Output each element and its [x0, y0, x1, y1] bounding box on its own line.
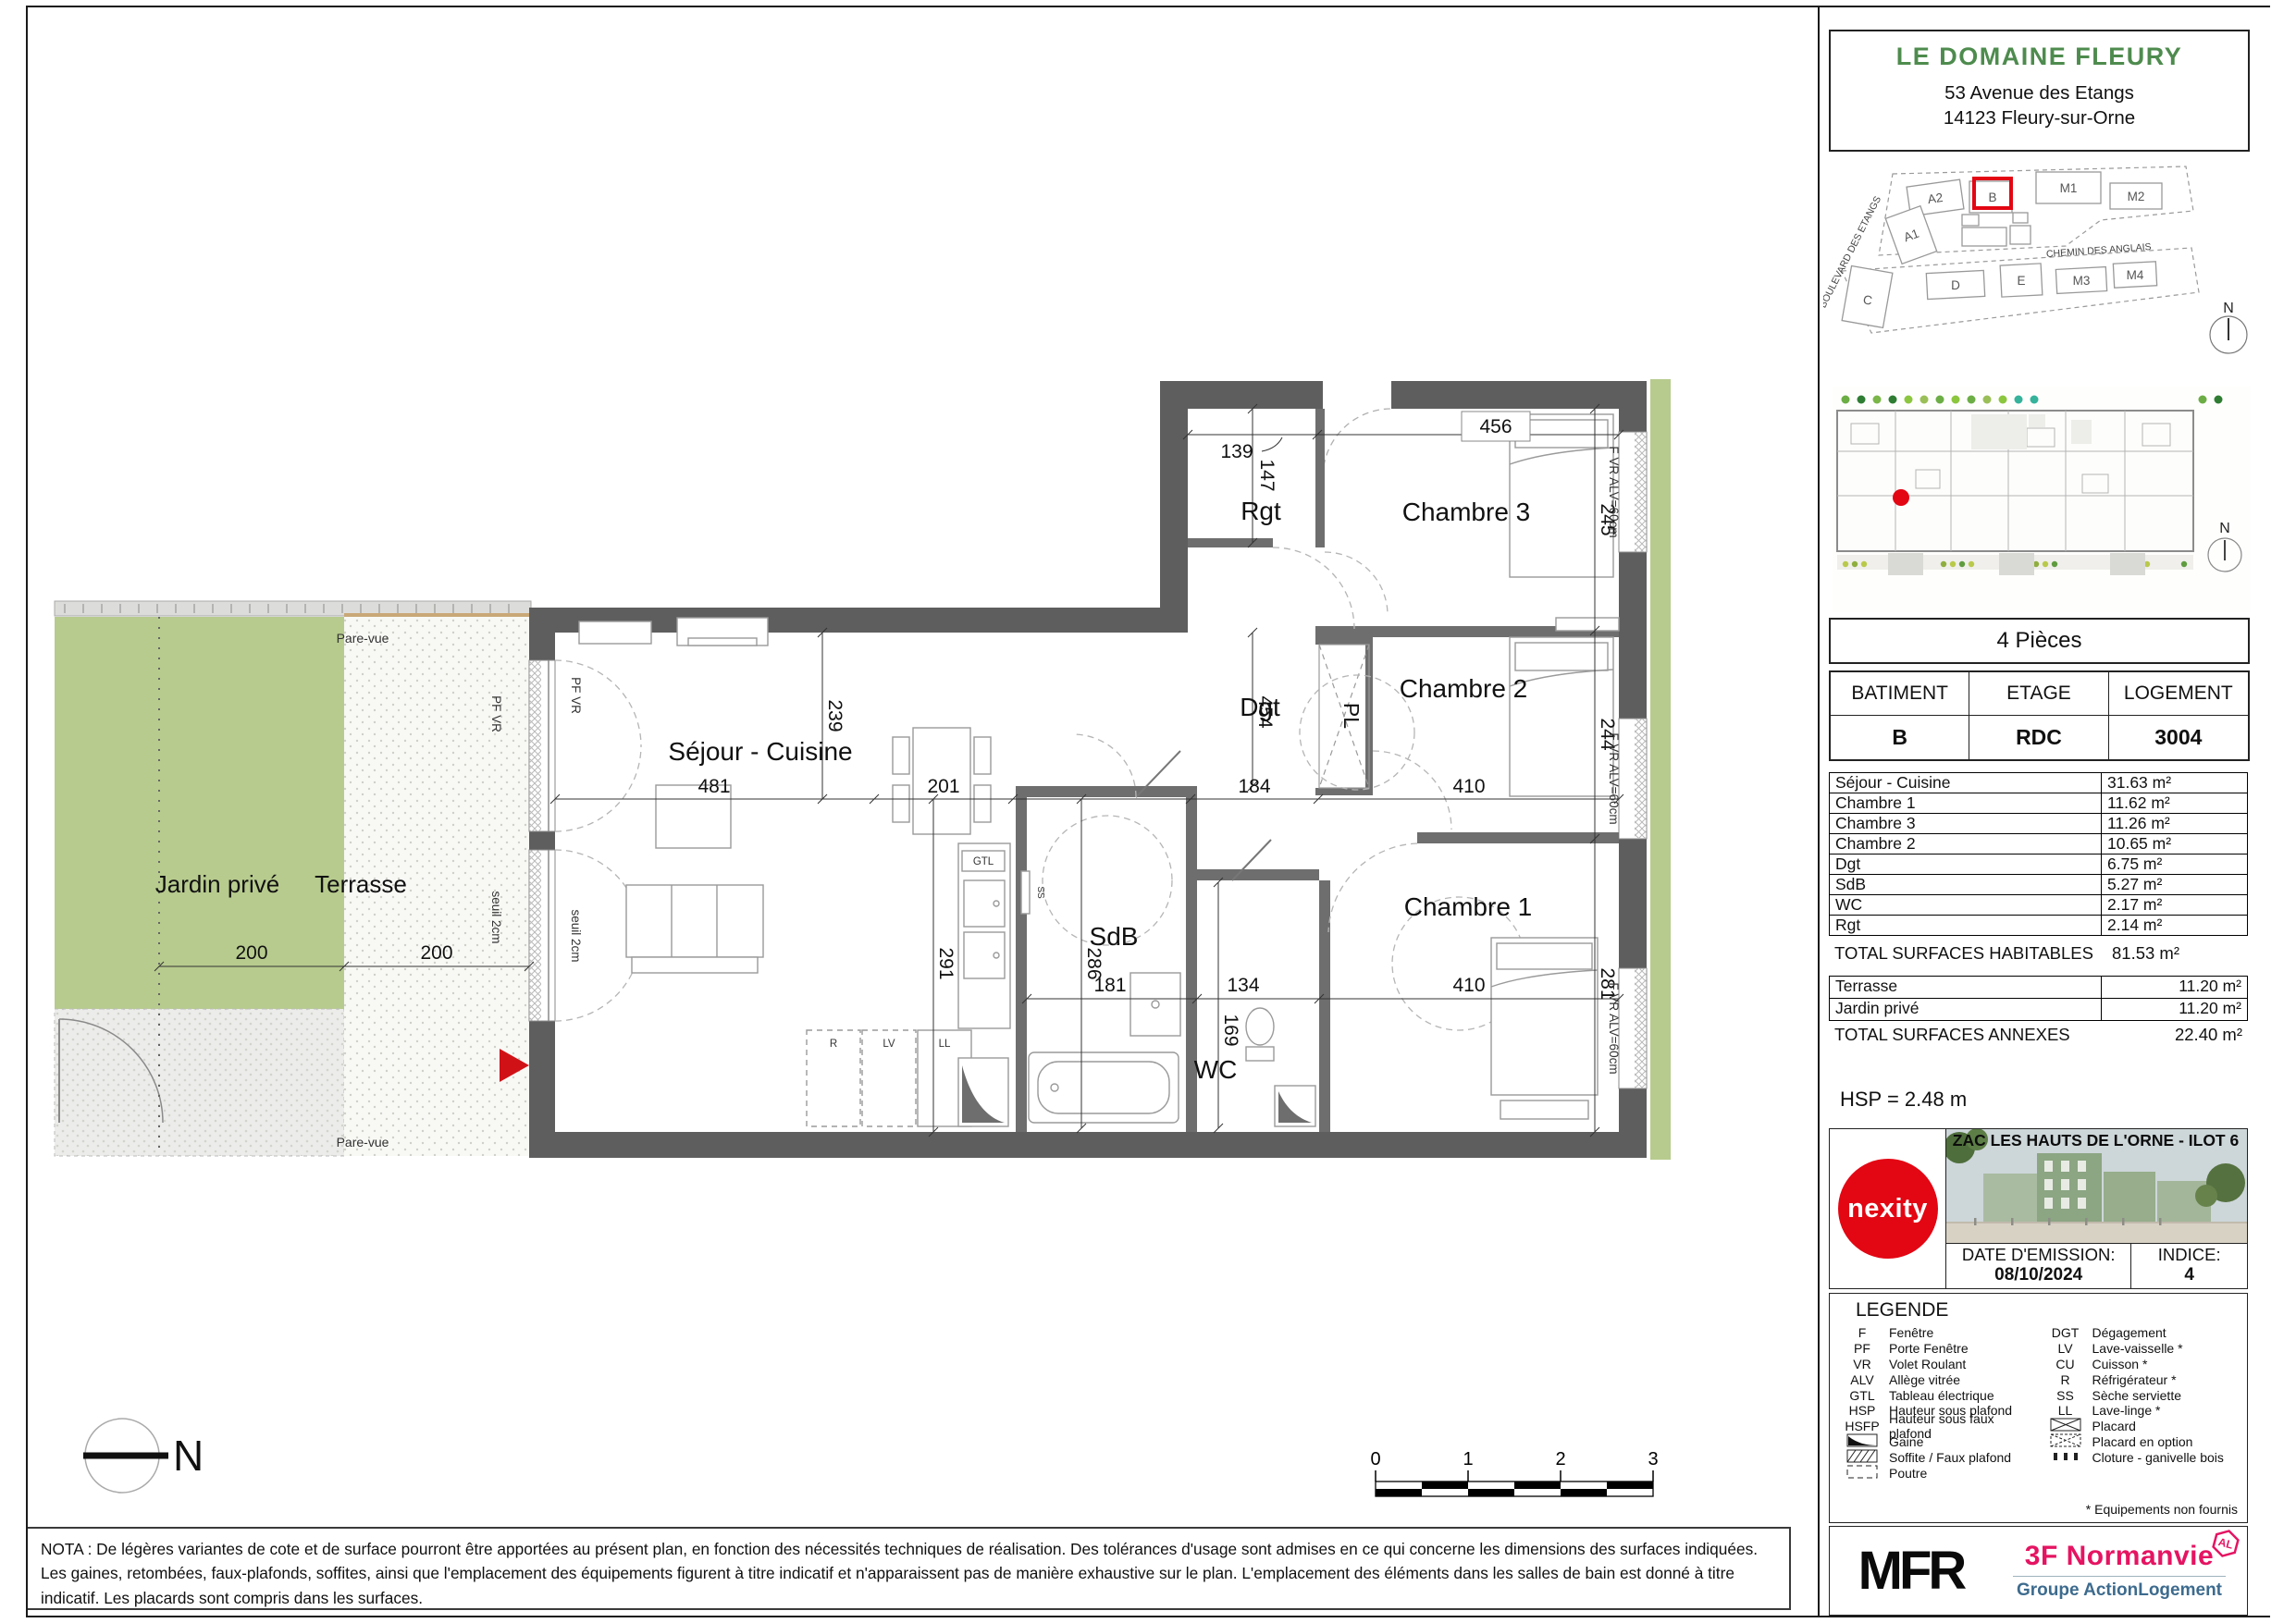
- annex-label: Jardin privé: [1830, 999, 2101, 1020]
- unit-type: 4 Pièces: [1829, 618, 2250, 664]
- legend: LEGENDE FFenêtre PFPorte Fenêtre VRVolet…: [1829, 1293, 2248, 1523]
- legend-abbr: HSFP: [1835, 1419, 1889, 1433]
- north-arrow: N: [83, 1419, 204, 1493]
- table-row: Séjour - Cuisine31.63 m²: [1830, 773, 2247, 793]
- room-ch2: Chambre 2: [1400, 674, 1528, 703]
- legend-abbr: PF: [1835, 1341, 1889, 1356]
- surface-label: SdB: [1830, 875, 2101, 894]
- building-m2: M2: [2128, 190, 2145, 203]
- table-row: Chambre 210.65 m²: [1830, 834, 2247, 855]
- 3f-normanvie-logo: 3F Normanvie AL Groupe ActionLogement: [1992, 1541, 2247, 1601]
- indice-value: 4: [2131, 1265, 2247, 1285]
- cloture-icon: [2039, 1449, 2092, 1466]
- room-terrasse: Terrasse: [315, 870, 407, 898]
- legend-label: Soffite / Faux plafond: [1889, 1450, 2039, 1465]
- poutre-icon: [1835, 1465, 1889, 1482]
- east-green-strip: [1650, 379, 1671, 1160]
- room-dgt: Dgt: [1240, 693, 1280, 721]
- plan-sheet: 456 139 147 245 244 281 239 291 454 286 …: [0, 0, 2296, 1623]
- label-ll: LL: [939, 1039, 951, 1050]
- surface-value: 5.27 m²: [2101, 875, 2247, 894]
- surface-label: Rgt: [1830, 916, 2101, 935]
- table-row: Jardin privé11.20 m²: [1830, 999, 2247, 1020]
- project-header: LE DOMAINE FLEURY 53 Avenue des Etangs 1…: [1829, 30, 2250, 152]
- private-garden: [55, 617, 344, 1009]
- gaine-icon: [1835, 1433, 1889, 1450]
- entry-door-opening: [1323, 381, 1391, 409]
- nexity-cell: nexity: [1830, 1129, 1946, 1288]
- indice: INDICE: 4: [2131, 1244, 2247, 1288]
- dim-200a: 200: [235, 942, 267, 964]
- table-row: Rgt2.14 m²: [1830, 916, 2247, 935]
- address-line1: 53 Avenue des Etangs: [1831, 80, 2248, 105]
- dim-410b: 410: [1452, 975, 1485, 996]
- annex-value: 11.20 m²: [2101, 999, 2247, 1020]
- total-habitables-value: 81.53 m²: [2105, 943, 2246, 964]
- legend-title: LEGENDE: [1856, 1299, 2247, 1322]
- room-rgt: Rgt: [1241, 497, 1281, 525]
- site-compass: N: [2210, 301, 2247, 353]
- legend-right: DGTDégagement LVLave-vaisselle * CUCuiss…: [2039, 1325, 2242, 1481]
- windows-east: [1619, 432, 1647, 1088]
- legend-abbr: SS: [2039, 1388, 2092, 1403]
- legend-label: Cuisson *: [2092, 1357, 2242, 1371]
- scale-3: 3: [1648, 1449, 1658, 1469]
- col-batiment: BATIMENT: [1831, 672, 1969, 716]
- room-jardin: Jardin privé: [155, 870, 279, 898]
- surface-label: Chambre 1: [1830, 793, 2101, 813]
- table-row: Chambre 311.26 m²: [1830, 814, 2247, 834]
- soffite-icon: [1835, 1449, 1889, 1466]
- hsp-note: HSP = 2.48 m: [1840, 1088, 1967, 1112]
- fvr-2: F VR ALV=60cm: [1607, 732, 1621, 824]
- unit-location-dot: [1893, 489, 1909, 506]
- nota-text: NOTA : De légères variantes de cote et d…: [28, 1527, 1791, 1610]
- placard-icon: [2039, 1418, 2092, 1434]
- project-address: 53 Avenue des Etangs 14123 Fleury-sur-Or…: [1831, 80, 2248, 130]
- dim-410a: 410: [1452, 776, 1485, 797]
- dim-134: 134: [1227, 975, 1259, 996]
- col-etage: ETAGE: [1969, 672, 2108, 716]
- unit-table: BATIMENT ETAGE LOGEMENT B RDC 3004: [1829, 670, 2250, 761]
- surface-value: 2.17 m²: [2101, 895, 2247, 915]
- legend-label: Volet Roulant: [1889, 1357, 2039, 1371]
- legend-label: Sèche serviette: [2092, 1388, 2242, 1403]
- surface-label: Chambre 3: [1830, 814, 2101, 833]
- pf-vr-1: PF VR: [489, 695, 503, 732]
- mfr-logo: MFR: [1830, 1540, 1992, 1602]
- seuil-2: seuil 2cm: [569, 909, 583, 962]
- table-row: Dgt6.75 m²: [1830, 855, 2247, 875]
- table-row: Chambre 111.62 m²: [1830, 793, 2247, 814]
- brand-divider: [2013, 1576, 2226, 1577]
- north-label: N: [173, 1432, 204, 1480]
- masterplan-north-label: N: [2219, 521, 2230, 536]
- dim-201: 201: [927, 776, 959, 797]
- surface-label: Séjour - Cuisine: [1830, 773, 2101, 793]
- legend-label: Tableau électrique: [1889, 1388, 2039, 1403]
- scale-0: 0: [1370, 1449, 1380, 1469]
- dim-239: 239: [824, 699, 846, 732]
- sheet-frame: 456 139 147 245 244 281 239 291 454 286 …: [26, 6, 2270, 1617]
- legend-abbr: CU: [2039, 1357, 2092, 1371]
- dim-147: 147: [1256, 459, 1278, 491]
- seuil-1: seuil 2cm: [489, 891, 503, 943]
- legend-label: Fenêtre: [1889, 1325, 2039, 1340]
- site-north-label: N: [2223, 301, 2234, 316]
- legend-footnote: * Equipements non fournis: [2086, 1502, 2238, 1517]
- dim-200b: 200: [420, 942, 452, 964]
- surface-value: 11.26 m²: [2101, 814, 2247, 833]
- legend-abbr: LL: [2039, 1403, 2092, 1418]
- legend-abbr: DGT: [2039, 1325, 2092, 1340]
- legend-abbr: HSP: [1835, 1403, 1889, 1418]
- indice-label: INDICE:: [2158, 1245, 2221, 1264]
- scale-bar: 0 1 2 3: [1370, 1449, 1658, 1496]
- surface-label: Chambre 2: [1830, 834, 2101, 854]
- pare-vue-bottom: Pare-vue: [337, 1135, 389, 1150]
- building-d: D: [1951, 278, 1960, 292]
- label-r: R: [830, 1039, 837, 1050]
- legend-label: Lave-linge *: [2092, 1403, 2242, 1418]
- building-m1: M1: [2060, 181, 2078, 195]
- building-e: E: [2017, 274, 2025, 288]
- total-habitables-label: TOTAL SURFACES HABITABLES: [1829, 943, 2105, 964]
- street-chemin: CHEMIN DES ANGLAIS: [2046, 241, 2152, 260]
- emission-date: DATE D'EMISSION: 08/10/2024: [1946, 1244, 2131, 1288]
- table-row: SdB5.27 m²: [1830, 875, 2247, 895]
- room-ch1: Chambre 1: [1404, 892, 1533, 921]
- legend-left: FFenêtre PFPorte Fenêtre VRVolet Roulant…: [1835, 1325, 2039, 1481]
- annexes-table: Terrasse11.20 m² Jardin privé11.20 m²: [1829, 976, 2248, 1021]
- pare-vue-top: Pare-vue: [337, 631, 389, 646]
- al-badge: AL: [2210, 1528, 2241, 1564]
- dim-139: 139: [1220, 441, 1253, 462]
- floor-plan: 456 139 147 245 244 281 239 291 454 286 …: [30, 233, 1820, 1583]
- scale-1: 1: [1463, 1449, 1473, 1469]
- nexity-logo: nexity: [1838, 1159, 1938, 1259]
- val-batiment: B: [1831, 716, 1969, 759]
- legend-abbr: ALV: [1835, 1372, 1889, 1387]
- dim-181: 181: [1093, 975, 1126, 996]
- site-plan: A2 A1 B M1 M2 C D E M3 M4 BOULEVARD DES …: [1823, 154, 2265, 383]
- date-indice-row: DATE D'EMISSION: 08/10/2024 INDICE: 4: [1946, 1244, 2247, 1288]
- legend-abbr: VR: [1835, 1357, 1889, 1371]
- surfaces-table: Séjour - Cuisine31.63 m² Chambre 111.62 …: [1829, 772, 2248, 936]
- surface-value: 31.63 m²: [2101, 773, 2247, 793]
- surface-label: WC: [1830, 895, 2101, 915]
- fvr-3: F VR ALV=60cm: [1607, 982, 1621, 1074]
- project-block: nexity ZAC LES HAUTS DE L'ORNE - ILOT 6: [1829, 1128, 2248, 1289]
- val-logement: 3004: [2109, 716, 2248, 759]
- legend-label: Placard en option: [2092, 1434, 2242, 1449]
- room-sejour: Séjour - Cuisine: [668, 737, 852, 766]
- legend-label: Dégagement: [2092, 1325, 2242, 1340]
- title-block: LE DOMAINE FLEURY 53 Avenue des Etangs 1…: [1818, 7, 2271, 1616]
- legend-label: Gaine: [1889, 1434, 2039, 1449]
- building-a2: A2: [1927, 191, 1944, 206]
- pf-vr-2: PF VR: [569, 677, 583, 714]
- dim-184: 184: [1238, 776, 1270, 797]
- annex-label: Terrasse: [1830, 977, 2101, 998]
- date-label: DATE D'EMISSION:: [1962, 1245, 2116, 1264]
- room-pl: PL: [1339, 703, 1364, 729]
- col-logement: LOGEMENT: [2109, 672, 2248, 716]
- legend-label: Porte Fenêtre: [1889, 1341, 2039, 1356]
- dim-481: 481: [697, 776, 730, 797]
- val-etage: RDC: [1969, 716, 2108, 759]
- brand-name: 3F Normanvie: [2025, 1541, 2214, 1571]
- legend-label: Allège vitrée: [1889, 1372, 2039, 1387]
- group-name: Groupe ActionLogement: [1992, 1580, 2247, 1601]
- total-annexes-value: 22.40 m²: [2102, 1025, 2246, 1045]
- surface-label: Dgt: [1830, 855, 2101, 874]
- legend-abbr: F: [1835, 1325, 1889, 1340]
- table-row: WC2.17 m²: [1830, 895, 2247, 916]
- legend-abbr: GTL: [1835, 1388, 1889, 1403]
- room-ch3: Chambre 3: [1402, 498, 1531, 526]
- building-m3: M3: [2073, 274, 2091, 288]
- legend-label: Poutre: [1889, 1466, 2039, 1481]
- project-banner: ZAC LES HAUTS DE L'ORNE - ILOT 6: [1946, 1131, 2245, 1150]
- legend-label: Lave-vaisselle *: [2092, 1341, 2242, 1356]
- surface-value: 10.65 m²: [2101, 834, 2247, 854]
- logos-block: MFR 3F Normanvie AL Groupe ActionLogemen…: [1829, 1526, 2248, 1616]
- building-b: B: [1988, 191, 1996, 204]
- scale-2: 2: [1555, 1449, 1565, 1469]
- legend-abbr: R: [2039, 1372, 2092, 1387]
- al-badge-text: AL: [2216, 1535, 2234, 1552]
- dim-169: 169: [1220, 1014, 1241, 1046]
- date-value: 08/10/2024: [1946, 1265, 2130, 1285]
- surface-value: 11.62 m²: [2101, 793, 2247, 813]
- fvr-1: F VR ALV=60cm: [1607, 446, 1621, 537]
- dim-456: 456: [1479, 416, 1512, 437]
- placard-option-icon: [2039, 1433, 2092, 1450]
- room-wc: WC: [1194, 1055, 1238, 1084]
- surface-value: 2.14 m²: [2101, 916, 2247, 935]
- total-habitables: TOTAL SURFACES HABITABLES 81.53 m²: [1829, 943, 2246, 964]
- room-sdb: SdB: [1090, 922, 1139, 951]
- legend-label: Placard: [2092, 1419, 2242, 1433]
- table-row: Terrasse11.20 m²: [1830, 977, 2247, 999]
- label-ss: SS: [1035, 886, 1045, 899]
- building-masterplan: N: [1833, 387, 2251, 612]
- building-m4: M4: [2127, 268, 2144, 282]
- surface-value: 6.75 m²: [2101, 855, 2247, 874]
- label-gtl: GTL: [973, 856, 994, 867]
- legend-label: Réfrigérateur *: [2092, 1372, 2242, 1387]
- dim-291: 291: [935, 947, 957, 979]
- total-annexes-label: TOTAL SURFACES ANNEXES: [1829, 1025, 2102, 1045]
- project-title: LE DOMAINE FLEURY: [1831, 43, 2248, 71]
- address-line2: 14123 Fleury-sur-Orne: [1831, 105, 2248, 130]
- total-annexes: TOTAL SURFACES ANNEXES 22.40 m²: [1829, 1025, 2246, 1045]
- legend-abbr: LV: [2039, 1341, 2092, 1356]
- label-lv: LV: [883, 1039, 895, 1050]
- project-photo: ZAC LES HAUTS DE L'ORNE - ILOT 6: [1946, 1129, 2247, 1244]
- legend-label: Cloture - ganivelle bois: [2092, 1450, 2242, 1465]
- annex-value: 11.20 m²: [2101, 977, 2247, 998]
